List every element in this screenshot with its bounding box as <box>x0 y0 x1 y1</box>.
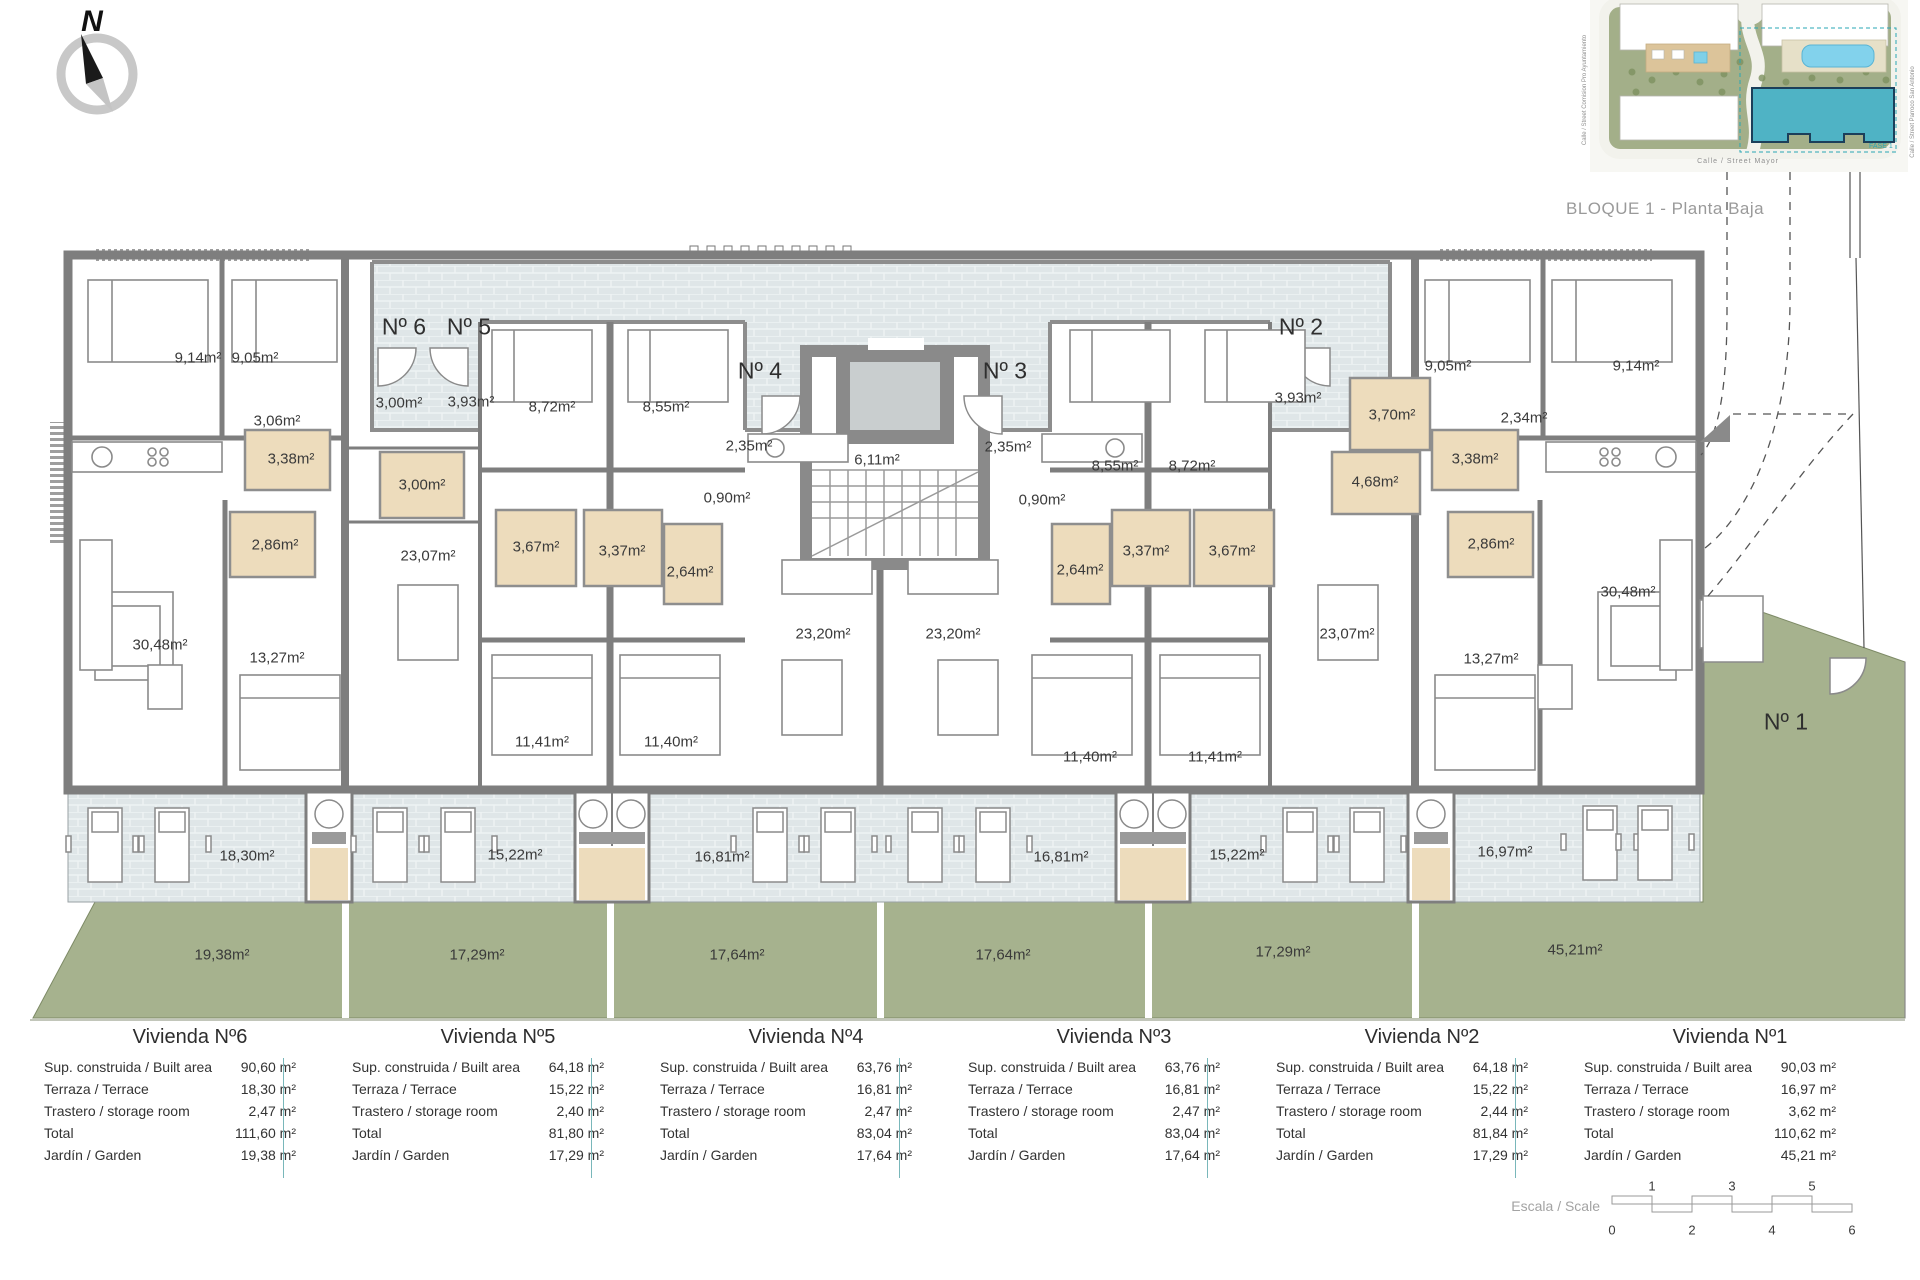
area-label: 3,70m² <box>1369 408 1416 423</box>
area-label: 3,37m² <box>1123 544 1170 559</box>
inset-street-label-left: Calle / Street Comision Pro Ayuntamiento <box>1582 35 1588 145</box>
table-row: Total110,62 m² <box>1584 1122 1836 1144</box>
table-row: Terraza / Terrace16,81 m² <box>968 1078 1220 1100</box>
area-label: 11,41m² <box>1188 750 1242 765</box>
area-label: 16,81m² <box>694 850 749 865</box>
row-value: 111,60 m² <box>235 1122 296 1144</box>
area-label: 8,55m² <box>1092 459 1139 474</box>
column-divider <box>591 1058 592 1178</box>
row-value: 90,60 m² <box>241 1056 296 1078</box>
row-label: Sup. construida / Built area <box>44 1056 212 1078</box>
row-label: Total <box>1584 1122 1614 1144</box>
vivienda-title: Vivienda Nº6 <box>36 1026 344 1056</box>
area-label: 30,48m² <box>132 638 187 653</box>
row-label: Terraza / Terrace <box>1584 1078 1689 1100</box>
table-row: Total81,84 m² <box>1276 1122 1528 1144</box>
row-value: 83,04 m² <box>1165 1122 1220 1144</box>
row-label: Total <box>968 1122 998 1144</box>
row-label: Terraza / Terrace <box>660 1078 765 1100</box>
area-label: 8,55m² <box>643 400 690 415</box>
area-label: 2,34m² <box>1501 411 1548 426</box>
table-row: Trastero / storage room2,47 m² <box>660 1100 912 1122</box>
area-label: 45,21m² <box>1547 943 1602 958</box>
scale-number: 3 <box>1728 1179 1735 1194</box>
vivienda-title: Vivienda Nº2 <box>1268 1026 1576 1056</box>
row-label: Trastero / storage room <box>968 1100 1114 1122</box>
table-row: Sup. construida / Built area90,60 m² <box>44 1056 296 1078</box>
scale-number: 2 <box>1688 1223 1695 1238</box>
table-row: Jardín / Garden19,38 m² <box>44 1144 296 1166</box>
area-label: 11,40m² <box>644 735 698 750</box>
table-row: Terraza / Terrace16,97 m² <box>1584 1078 1836 1100</box>
row-label: Sup. construida / Built area <box>968 1056 1136 1078</box>
row-value: 64,18 m² <box>549 1056 604 1078</box>
area-label: 9,14m² <box>1613 359 1660 374</box>
table-row: Trastero / storage room2,47 m² <box>44 1100 296 1122</box>
row-value: 2,40 m² <box>557 1100 604 1122</box>
vivienda-column: Vivienda Nº5Sup. construida / Built area… <box>344 1026 652 1166</box>
table-row: Jardín / Garden45,21 m² <box>1584 1144 1836 1166</box>
row-value: 2,47 m² <box>1173 1100 1220 1122</box>
area-label: 17,29m² <box>1255 945 1310 960</box>
table-row: Terraza / Terrace15,22 m² <box>352 1078 604 1100</box>
area-label: 13,27m² <box>249 651 304 666</box>
area-label: 23,07m² <box>400 549 455 564</box>
table-row: Trastero / storage room2,44 m² <box>1276 1100 1528 1122</box>
area-label: 9,05m² <box>232 351 279 366</box>
site-plan-inset <box>1590 0 1908 172</box>
area-label: 17,64m² <box>709 948 764 963</box>
row-label: Terraza / Terrace <box>968 1078 1073 1100</box>
row-label: Jardín / Garden <box>1276 1144 1373 1166</box>
row-label: Sup. construida / Built area <box>1276 1056 1444 1078</box>
row-value: 63,76 m² <box>857 1056 912 1078</box>
row-label: Total <box>44 1122 74 1144</box>
table-row: Total81,80 m² <box>352 1122 604 1144</box>
table-row: Jardín / Garden17,29 m² <box>352 1144 604 1166</box>
area-label: 16,81m² <box>1033 850 1088 865</box>
column-divider <box>1515 1058 1516 1178</box>
row-value: 2,44 m² <box>1481 1100 1528 1122</box>
table-row: Sup. construida / Built area63,76 m² <box>660 1056 912 1078</box>
storage-box <box>575 792 649 902</box>
area-label: 23,07m² <box>1319 627 1374 642</box>
table-row: Jardín / Garden17,64 m² <box>660 1144 912 1166</box>
table-row: Trastero / storage room2,47 m² <box>968 1100 1220 1122</box>
row-value: 81,84 m² <box>1473 1122 1528 1144</box>
row-value: 64,18 m² <box>1473 1056 1528 1078</box>
area-label: 19,38m² <box>194 948 249 963</box>
area-label: 0,90m² <box>1019 493 1066 508</box>
table-row: Terraza / Terrace18,30 m² <box>44 1078 296 1100</box>
inset-fase-label: FASE 1 <box>1869 143 1893 150</box>
row-value: 16,81 m² <box>857 1078 912 1100</box>
area-label: 15,22m² <box>1209 848 1264 863</box>
inset-street-label-bottom: Calle / Street Mayor <box>1697 158 1779 165</box>
row-value: 83,04 m² <box>857 1122 912 1144</box>
row-value: 2,47 m² <box>249 1100 296 1122</box>
scale-number: 1 <box>1648 1179 1655 1194</box>
area-label: 11,41m² <box>515 735 569 750</box>
entrance-label: Nº 3 <box>983 360 1027 383</box>
area-label: 3,37m² <box>599 544 646 559</box>
row-value: 17,64 m² <box>857 1144 912 1166</box>
inset-pool <box>1802 45 1874 67</box>
row-label: Trastero / storage room <box>1584 1100 1730 1122</box>
inset-street-label-right: Calle / Street Parroco San Antonio <box>1910 66 1916 157</box>
entrance-label: Nº 1 <box>1764 711 1808 734</box>
scale-number: 6 <box>1848 1223 1855 1238</box>
page-title: BLOQUE 1 - Planta Baja <box>1566 199 1764 219</box>
row-value: 90,03 m² <box>1781 1056 1836 1078</box>
area-label: 2,64m² <box>1057 563 1104 578</box>
row-label: Total <box>352 1122 382 1144</box>
row-label: Jardín / Garden <box>44 1144 141 1166</box>
compass-icon <box>61 34 133 112</box>
row-value: 15,22 m² <box>1473 1078 1528 1100</box>
area-label: 3,38m² <box>268 452 315 467</box>
vivienda-title: Vivienda Nº5 <box>344 1026 652 1056</box>
entrance-label: Nº 5 <box>447 316 491 339</box>
storage-box <box>1408 792 1454 902</box>
entrance-label: Nº 2 <box>1279 316 1323 339</box>
row-value: 81,80 m² <box>549 1122 604 1144</box>
scale-number: 4 <box>1768 1223 1775 1238</box>
row-label: Total <box>660 1122 690 1144</box>
column-divider <box>283 1058 284 1178</box>
table-row: Jardín / Garden17,64 m² <box>968 1144 1220 1166</box>
row-label: Jardín / Garden <box>1584 1144 1681 1166</box>
table-row: Terraza / Terrace16,81 m² <box>660 1078 912 1100</box>
area-label: 2,64m² <box>667 565 714 580</box>
area-label: 3,67m² <box>513 540 560 555</box>
row-label: Total <box>1276 1122 1306 1144</box>
row-label: Trastero / storage room <box>44 1100 190 1122</box>
vivienda-column: Vivienda Nº2Sup. construida / Built area… <box>1268 1026 1576 1166</box>
area-label: 9,14m² <box>175 351 222 366</box>
area-label: 2,86m² <box>1468 537 1515 552</box>
area-label: 8,72m² <box>1169 459 1216 474</box>
area-label: 2,35m² <box>985 440 1032 455</box>
row-label: Terraza / Terrace <box>44 1078 149 1100</box>
area-label: 3,06m² <box>254 414 301 429</box>
inset-highlighted-block <box>1752 88 1894 142</box>
area-label: 0,90m² <box>704 491 751 506</box>
vivienda-column: Vivienda Nº6Sup. construida / Built area… <box>36 1026 344 1166</box>
area-label: 30,48m² <box>1600 585 1655 600</box>
row-value: 16,97 m² <box>1781 1078 1836 1100</box>
row-value: 18,30 m² <box>241 1078 296 1100</box>
area-label: 18,30m² <box>219 849 274 864</box>
area-label: 23,20m² <box>925 627 980 642</box>
vivienda-title: Vivienda Nº4 <box>652 1026 960 1056</box>
storage-box <box>306 792 352 902</box>
inset-building <box>1620 96 1738 140</box>
scale-bar <box>1608 1192 1868 1218</box>
area-label: 6,11m² <box>854 453 900 468</box>
vivienda-title: Vivienda Nº3 <box>960 1026 1268 1056</box>
table-row: Total111,60 m² <box>44 1122 296 1144</box>
vivienda-column: Vivienda Nº3Sup. construida / Built area… <box>960 1026 1268 1166</box>
table-row: Sup. construida / Built area64,18 m² <box>352 1056 604 1078</box>
entrance-label: Nº 4 <box>738 360 782 383</box>
table-row: Total83,04 m² <box>660 1122 912 1144</box>
entry-walkway <box>1703 596 1763 662</box>
row-label: Jardín / Garden <box>660 1144 757 1166</box>
table-row: Sup. construida / Built area64,18 m² <box>1276 1056 1528 1078</box>
column-divider <box>1207 1058 1208 1178</box>
table-row: Jardín / Garden17,29 m² <box>1276 1144 1528 1166</box>
area-label: 16,97m² <box>1477 845 1532 860</box>
floorplan-page: N BLOQUE 1 - Planta Baja Calle / Street … <box>0 0 1920 1280</box>
row-label: Trastero / storage room <box>352 1100 498 1122</box>
vivienda-column: Vivienda Nº4Sup. construida / Built area… <box>652 1026 960 1166</box>
table-row: Sup. construida / Built area90,03 m² <box>1584 1056 1836 1078</box>
row-label: Terraza / Terrace <box>1276 1078 1381 1100</box>
area-label: 23,20m² <box>795 627 850 642</box>
row-label: Jardín / Garden <box>968 1144 1065 1166</box>
storage-box <box>1116 792 1190 902</box>
row-value: 2,47 m² <box>865 1100 912 1122</box>
table-row: Sup. construida / Built area63,76 m² <box>968 1056 1220 1078</box>
row-value: 17,29 m² <box>1473 1144 1528 1166</box>
area-label: 17,29m² <box>449 948 504 963</box>
compass-north-label: N <box>81 5 103 39</box>
area-label: 3,93m² <box>448 395 495 410</box>
row-value: 17,29 m² <box>549 1144 604 1166</box>
row-label: Sup. construida / Built area <box>660 1056 828 1078</box>
row-value: 19,38 m² <box>241 1144 296 1166</box>
scale-number: 5 <box>1808 1179 1815 1194</box>
scale-label: Escala / Scale <box>1511 1198 1600 1214</box>
vivienda-summary-table: Vivienda Nº6Sup. construida / Built area… <box>36 1026 1896 1186</box>
row-value: 15,22 m² <box>549 1078 604 1100</box>
column-divider <box>899 1058 900 1178</box>
area-label: 4,68m² <box>1352 475 1399 490</box>
row-label: Trastero / storage room <box>660 1100 806 1122</box>
area-label: 15,22m² <box>487 848 542 863</box>
area-label: 8,72m² <box>529 400 576 415</box>
row-value: 110,62 m² <box>1774 1122 1836 1144</box>
table-row: Terraza / Terrace15,22 m² <box>1276 1078 1528 1100</box>
row-value: 45,21 m² <box>1781 1144 1836 1166</box>
area-label: 3,93m² <box>1275 391 1322 406</box>
area-label: 17,64m² <box>975 948 1030 963</box>
row-label: Terraza / Terrace <box>352 1078 457 1100</box>
scale-number: 0 <box>1608 1223 1615 1238</box>
area-label: 2,35m² <box>726 439 773 454</box>
vivienda-title: Vivienda Nº1 <box>1576 1026 1884 1056</box>
row-value: 63,76 m² <box>1165 1056 1220 1078</box>
vivienda-column: Vivienda Nº1Sup. construida / Built area… <box>1576 1026 1884 1166</box>
area-label: 3,00m² <box>399 478 446 493</box>
area-label: 2,86m² <box>252 538 299 553</box>
inset-building <box>1620 4 1738 50</box>
entrance-label: Nº 6 <box>382 316 426 339</box>
area-label: 9,05m² <box>1425 359 1472 374</box>
row-label: Sup. construida / Built area <box>1584 1056 1752 1078</box>
row-value: 16,81 m² <box>1165 1078 1220 1100</box>
area-label: 3,67m² <box>1209 544 1256 559</box>
row-label: Jardín / Garden <box>352 1144 449 1166</box>
area-label: 3,38m² <box>1452 452 1499 467</box>
area-label: 13,27m² <box>1463 652 1518 667</box>
area-label: 11,40m² <box>1063 750 1117 765</box>
row-label: Trastero / storage room <box>1276 1100 1422 1122</box>
table-row: Trastero / storage room2,40 m² <box>352 1100 604 1122</box>
table-row: Total83,04 m² <box>968 1122 1220 1144</box>
table-row: Trastero / storage room3,62 m² <box>1584 1100 1836 1122</box>
area-label: 3,00m² <box>376 396 423 411</box>
row-value: 3,62 m² <box>1789 1100 1836 1122</box>
row-label: Sup. construida / Built area <box>352 1056 520 1078</box>
row-value: 17,64 m² <box>1165 1144 1220 1166</box>
